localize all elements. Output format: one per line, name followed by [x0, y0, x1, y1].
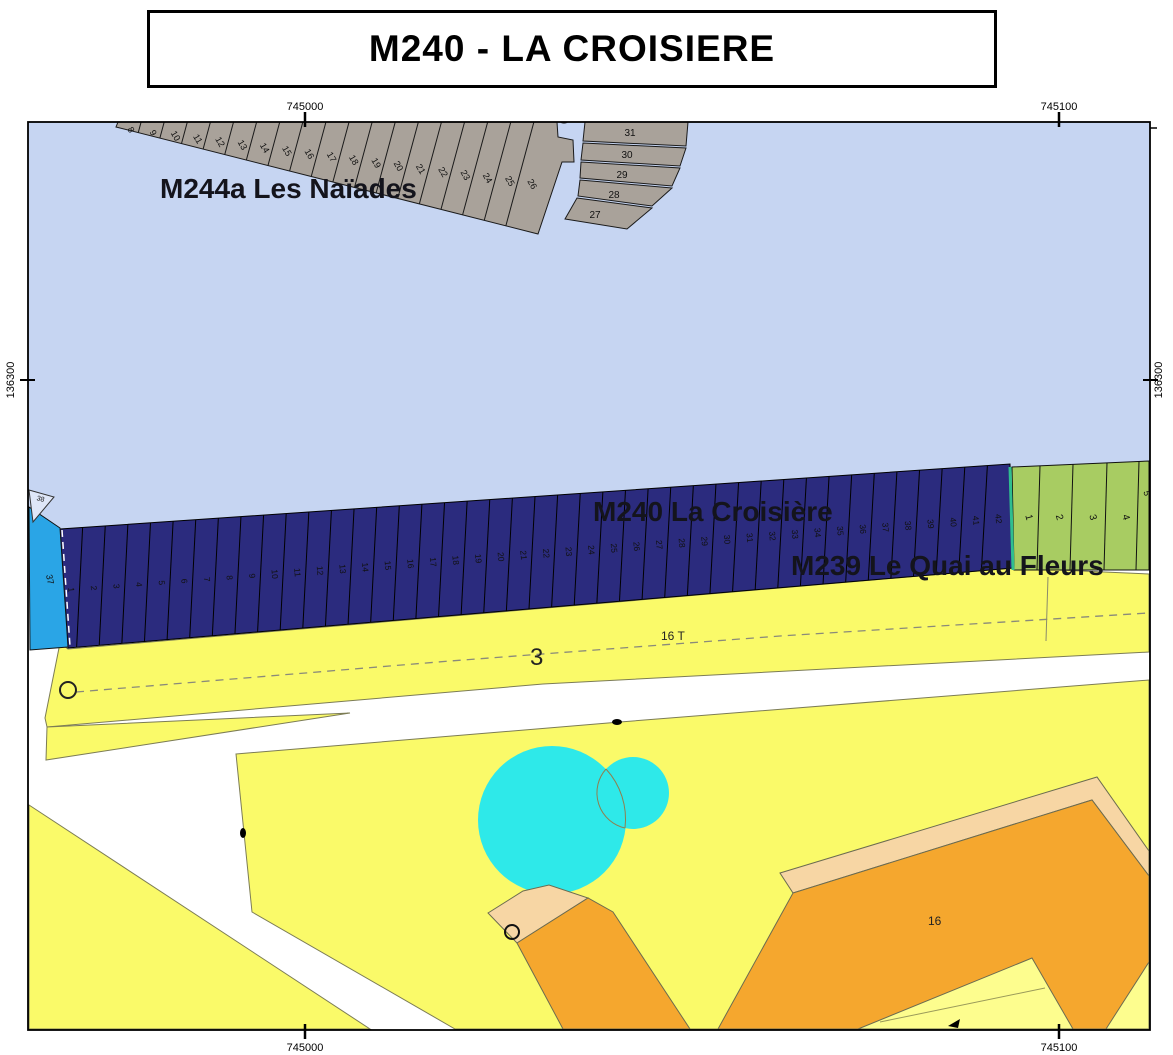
coord-top-right: 745100 [1041, 101, 1078, 113]
croisiere-parcel-number: 16 [405, 559, 416, 570]
road-number-label: 3 [530, 644, 543, 671]
plot-16t-label: 16 T [661, 629, 685, 643]
coord-bottom-left: 745000 [287, 1042, 324, 1054]
pool-large [478, 746, 626, 894]
croisiere-parcel-number: 15 [383, 560, 394, 571]
naiades-stack-number: 29 [616, 170, 628, 181]
croisiere-parcel-number: 12 [315, 566, 326, 577]
map-canvas: 891011121314151617181920212223242526 313… [0, 0, 1173, 1055]
croisiere-parcel-number: 32 [767, 531, 778, 542]
naiades-stack-number: 27 [589, 210, 601, 221]
coord-bottom-right: 745100 [1041, 1042, 1078, 1054]
naiades-stack-number: 31 [624, 128, 636, 139]
croisiere-parcel-number: 10 [269, 569, 280, 580]
croisiere-parcel-number: 39 [925, 519, 936, 530]
croisiere-parcel-number: 31 [744, 533, 755, 544]
croisiere-parcel-number: 24 [586, 545, 597, 556]
croisiere-parcel-number: 19 [473, 553, 484, 564]
croisiere-parcel-number: 26 [631, 541, 642, 552]
boundary-marker-1 [612, 719, 622, 725]
boundary-marker-2 [240, 828, 246, 838]
croisiere-parcel-number: 41 [971, 515, 982, 526]
croisiere-parcel-number: 11 [292, 568, 303, 578]
croisiere-parcel-number: 37 [880, 522, 891, 533]
cadastral-map-page: M240 - LA CROISIERE [0, 0, 1173, 1055]
coord-left: 136300 [5, 362, 17, 399]
croisiere-parcel-number: 18 [450, 555, 461, 566]
naiades-stack-number: 30 [621, 150, 633, 161]
croisiere-parcel-number: 33 [790, 529, 801, 540]
naiades-stack-number: 28 [608, 190, 620, 201]
croisiere-parcel-number: 27 [654, 540, 665, 551]
blue-parcel-number: 37 [44, 573, 56, 585]
croisiere-parcel-number: 23 [564, 546, 575, 557]
croisiere-parcel-number: 14 [360, 562, 371, 573]
croisiere-parcel-number: 28 [677, 538, 688, 549]
quai-label: M239 Le Quai au Fleurs [791, 550, 1104, 581]
coord-right: 136300 [1153, 362, 1165, 399]
croisiere-parcel-number: 42 [993, 514, 1004, 525]
naiades-label: M244a Les Naïades [160, 173, 417, 204]
croisiere-parcel-number: 17 [428, 557, 439, 568]
croisiere-parcel-number: 13 [337, 564, 348, 575]
croisiere-parcel-number: 30 [722, 534, 733, 545]
croisiere-parcel-number: 35 [835, 526, 846, 537]
coord-top-left: 745000 [287, 101, 324, 113]
croisiere-parcel-number: 22 [541, 548, 552, 559]
croisiere-parcel-number: 40 [948, 517, 959, 528]
croisiere-parcel-number: 38 [903, 520, 914, 531]
croisiere-parcel-number: 29 [699, 536, 710, 547]
croisiere-parcel-number: 34 [812, 527, 823, 538]
croisiere-parcel-number: 21 [518, 550, 529, 561]
croisiere-label: M240 La Croisière [593, 496, 833, 527]
croisiere-parcel-number: 25 [609, 543, 620, 554]
croisiere-parcel-number: 20 [496, 552, 507, 563]
croisiere-parcel-number: 36 [858, 524, 869, 535]
plot-16-label: 16 [928, 914, 942, 928]
